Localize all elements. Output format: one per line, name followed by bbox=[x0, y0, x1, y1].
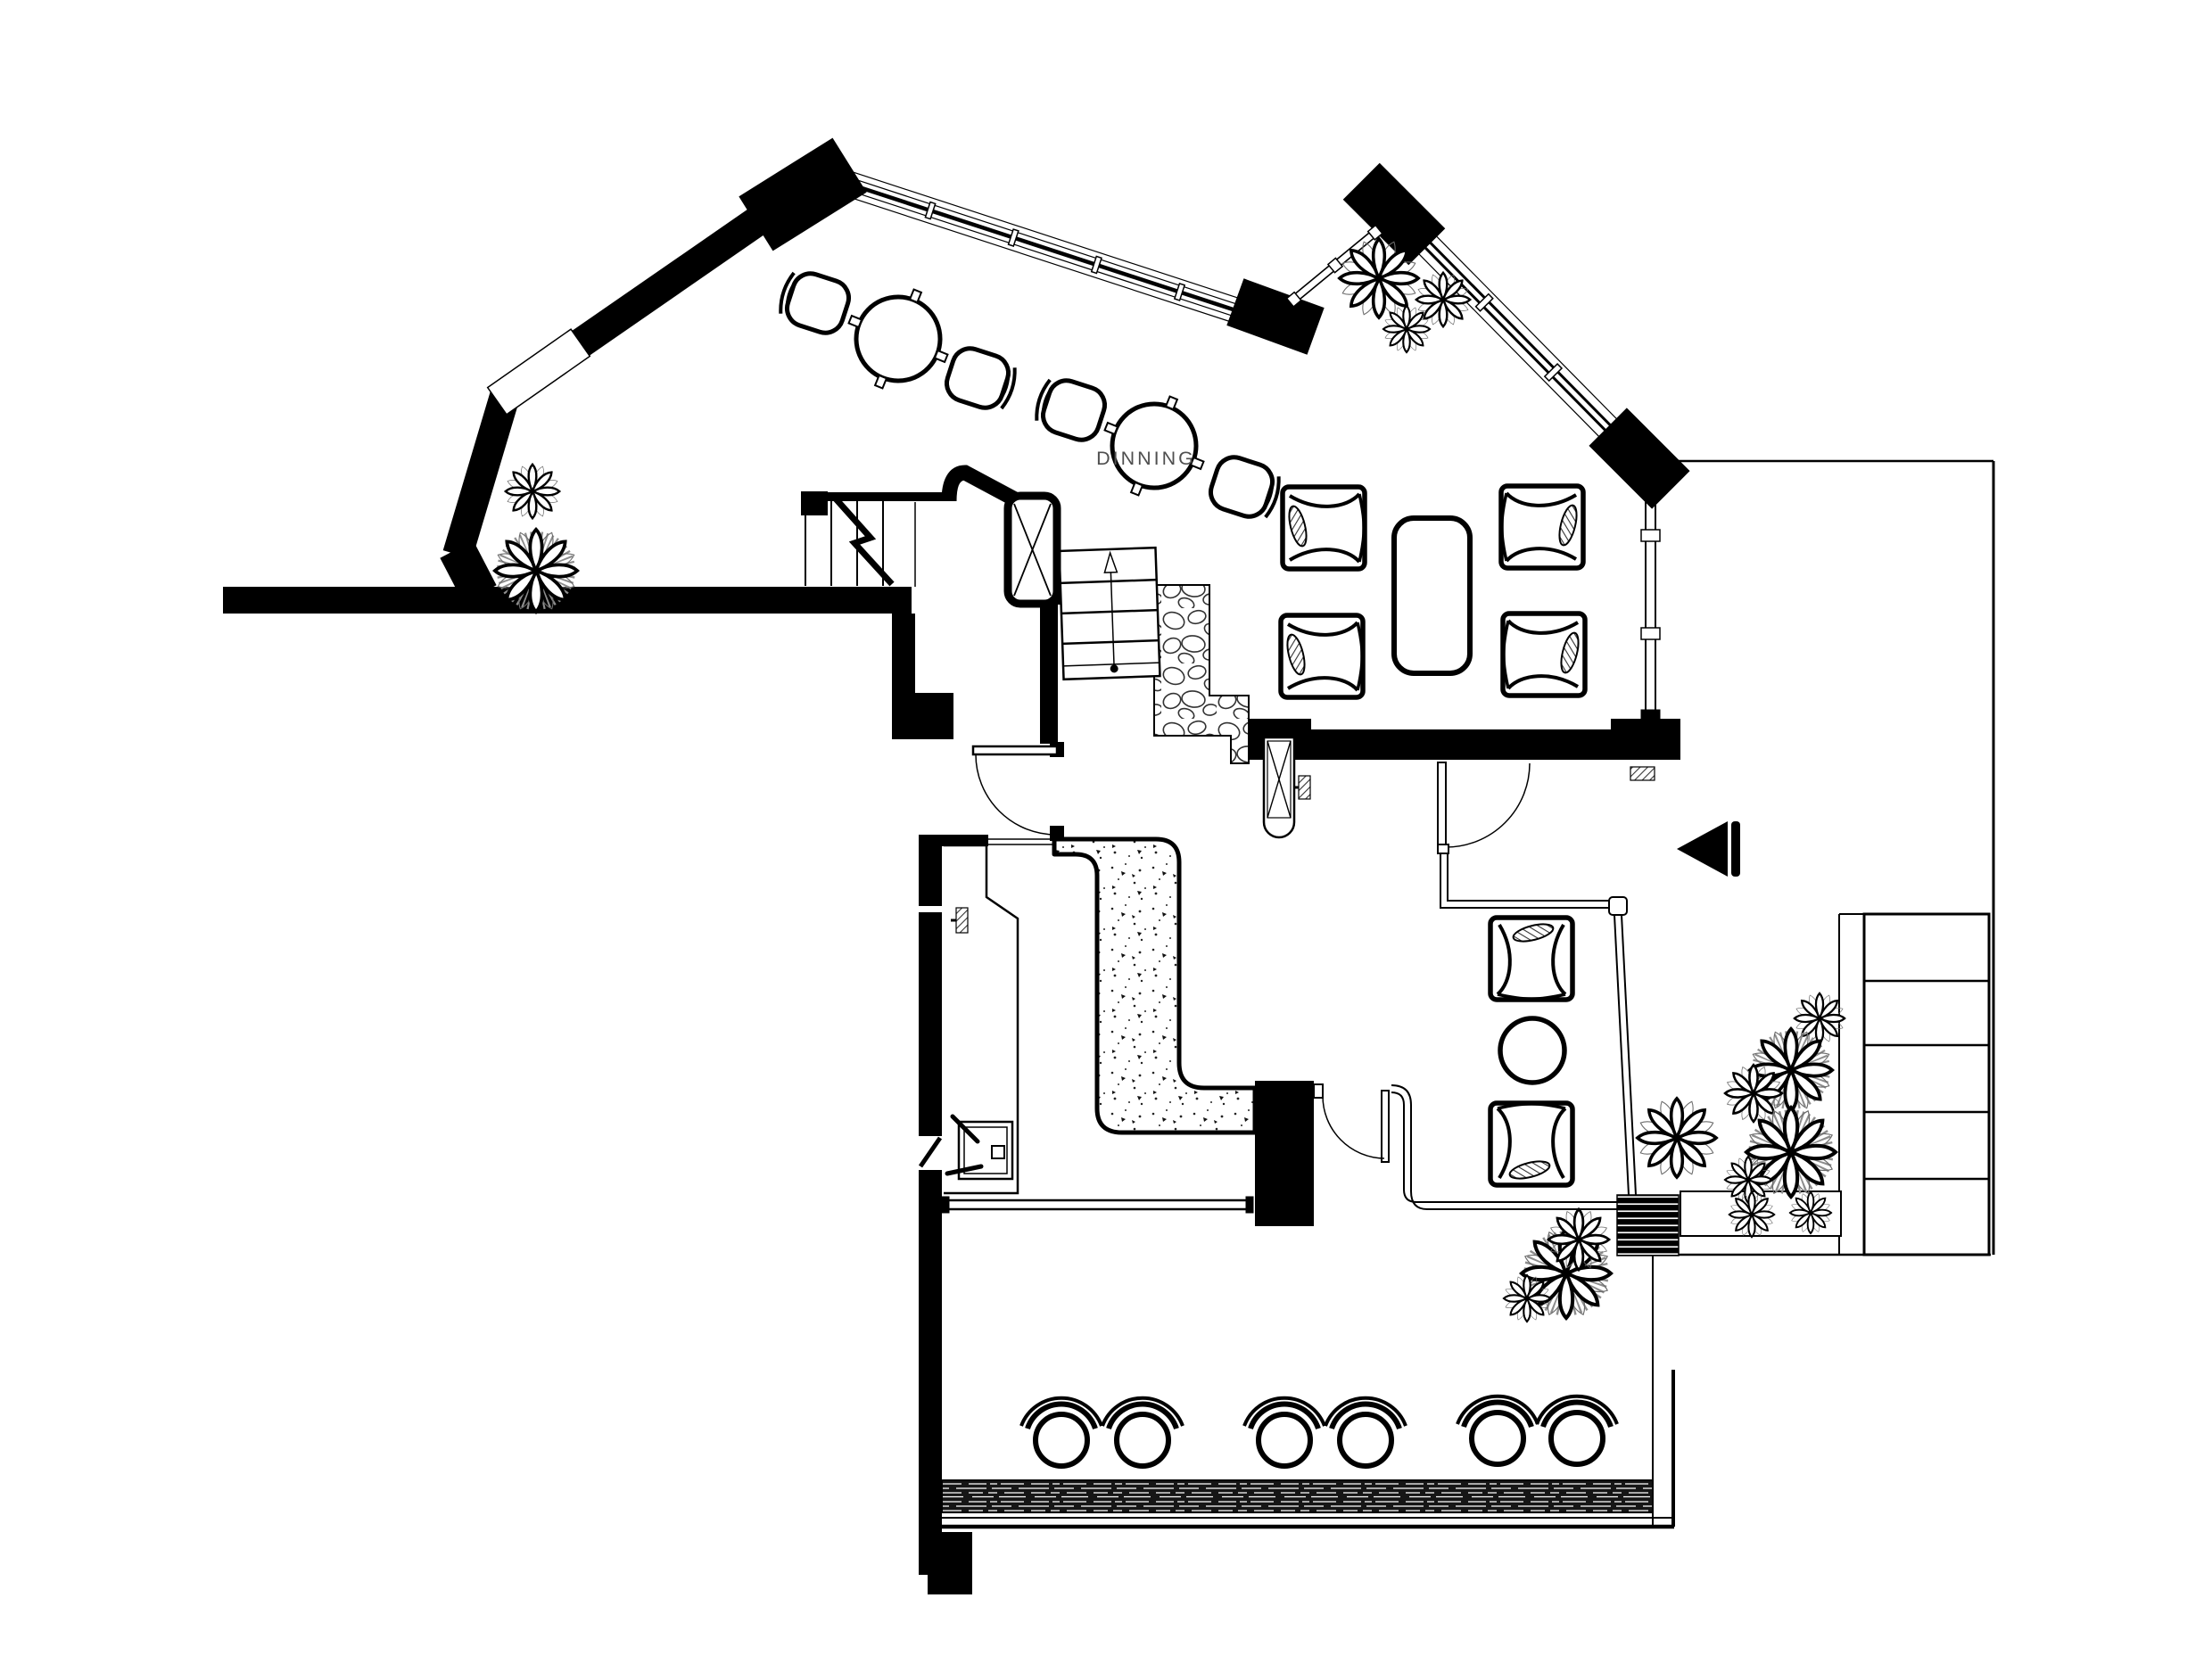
window-wall-east-gable bbox=[1407, 225, 1632, 452]
bent-wall-window bbox=[488, 329, 590, 415]
dining-armchair bbox=[1283, 487, 1365, 569]
window-dining-right bbox=[1641, 492, 1660, 721]
dining-table bbox=[1394, 518, 1470, 673]
door-closer-mark bbox=[1630, 767, 1655, 780]
dining-armchair bbox=[1501, 486, 1583, 568]
bar-stool bbox=[1021, 1398, 1102, 1466]
window-chair bbox=[942, 344, 1019, 415]
dining-set bbox=[1281, 486, 1585, 697]
window-table bbox=[1086, 378, 1221, 513]
dining-armchair bbox=[1503, 614, 1585, 696]
stone-path bbox=[1154, 585, 1249, 763]
bar-stool bbox=[1457, 1396, 1538, 1464]
bar-stool bbox=[1537, 1396, 1617, 1464]
floorplan-page: DINNING bbox=[0, 0, 2212, 1664]
bar-stool bbox=[1244, 1398, 1325, 1466]
room-label-dining: DINNING bbox=[1096, 448, 1196, 469]
window-seating-row bbox=[775, 267, 1284, 523]
bar-stool bbox=[1102, 1398, 1183, 1466]
wood-bar-top bbox=[942, 1480, 1653, 1512]
door-lounge-top bbox=[1438, 762, 1530, 847]
window-chair bbox=[1031, 374, 1109, 444]
entry-arrow bbox=[1677, 821, 1740, 877]
stair-main bbox=[1060, 548, 1160, 680]
shaft-room bbox=[949, 473, 1057, 604]
lounge-table bbox=[1500, 1018, 1564, 1083]
door-kitchen bbox=[973, 746, 1057, 844]
floorplan-svg: DINNING bbox=[0, 0, 2212, 1664]
lounge-set bbox=[1490, 918, 1572, 1185]
kitchen-counter bbox=[944, 845, 1018, 1193]
bar-stools bbox=[1021, 1396, 1617, 1466]
louver-column bbox=[1617, 1195, 1679, 1256]
dining-armchair bbox=[1281, 615, 1363, 697]
lounge-armchair bbox=[1490, 1103, 1572, 1185]
lounge-armchair bbox=[1490, 918, 1572, 1000]
bar-stool bbox=[1325, 1398, 1406, 1466]
bar-counter bbox=[1054, 839, 1255, 1133]
window-chair bbox=[1206, 453, 1283, 523]
terrace-steps bbox=[1839, 914, 1989, 1255]
window-chair bbox=[775, 267, 853, 337]
door-stool-room bbox=[1314, 1084, 1389, 1162]
